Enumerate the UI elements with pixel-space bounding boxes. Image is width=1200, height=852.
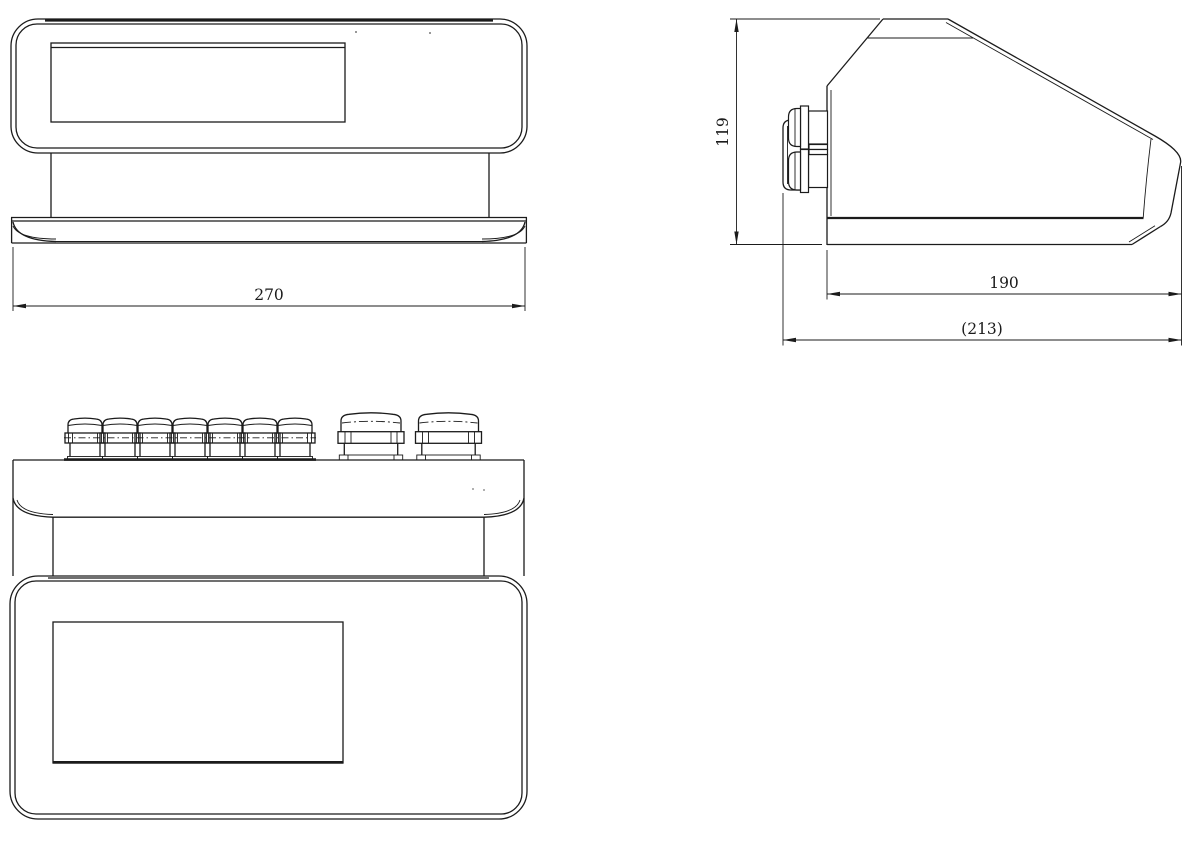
cable-gland-small xyxy=(100,418,140,460)
bottom-access-panel xyxy=(53,622,343,763)
cable-gland-large xyxy=(338,413,404,460)
bottom-base-shoulder-right-inner xyxy=(484,500,520,515)
drawing-canvas: 270 xyxy=(0,0,1200,852)
cable-gland-small xyxy=(135,418,175,460)
cable-gland-small xyxy=(240,418,280,460)
front-head xyxy=(11,19,527,153)
side-front-slope-inner xyxy=(946,23,1153,140)
front-base-shoulder-left-inner xyxy=(13,226,56,239)
gland-mid-block xyxy=(809,145,828,150)
bottom-column xyxy=(53,517,484,576)
cable-gland-small xyxy=(275,418,315,460)
side-view: 119 190 (213) xyxy=(714,19,1182,346)
dim-label-side-overall-depth: (213) xyxy=(961,320,1003,338)
side-depth-dimension: 190 xyxy=(827,166,1182,346)
bottom-head-inner-outline xyxy=(15,581,522,814)
arrowhead-left xyxy=(13,304,26,308)
gland-mid-block xyxy=(809,150,828,155)
speck-dot xyxy=(472,488,474,490)
gland-body xyxy=(809,155,828,188)
arrowhead-left xyxy=(783,338,796,342)
cable-gland-side-lower xyxy=(789,150,828,193)
speck-dot xyxy=(429,32,431,34)
speck-dot xyxy=(355,31,357,33)
bottom-cable-glands xyxy=(64,413,482,460)
gland-cap xyxy=(789,152,801,190)
dim-label-side-depth: 190 xyxy=(989,274,1019,292)
bottom-base xyxy=(13,460,524,576)
arrowhead-up xyxy=(734,19,738,32)
arrowhead-left xyxy=(827,292,840,296)
technical-drawing-page: 270 xyxy=(0,0,1200,852)
gland-body xyxy=(809,111,828,144)
arrowhead-down xyxy=(734,232,738,245)
side-front-slope xyxy=(948,19,1181,227)
cable-gland-small xyxy=(205,418,245,460)
bottom-head xyxy=(10,488,527,819)
dim-label-side-height: 119 xyxy=(714,117,732,147)
front-base xyxy=(11,218,527,244)
gland-cap xyxy=(789,109,801,147)
cable-gland-side-upper xyxy=(789,106,828,149)
side-cable-glands xyxy=(783,106,828,193)
bottom-base-shoulder-left-inner xyxy=(17,500,53,515)
cable-gland-small xyxy=(170,418,210,460)
front-base-shoulder-right-inner xyxy=(482,226,525,239)
front-column xyxy=(51,153,489,218)
side-front-crease xyxy=(1143,139,1151,218)
front-width-dimension: 270 xyxy=(13,247,525,311)
front-view: 270 xyxy=(11,19,527,311)
side-overall-depth-dimension: (213) xyxy=(783,193,1182,346)
arrowhead-right xyxy=(512,304,525,308)
side-base-chamfer-inner xyxy=(1129,226,1155,242)
gland-flange xyxy=(801,106,809,149)
bottom-head-outer-outline xyxy=(10,576,527,819)
side-base-chamfer-outer xyxy=(1132,227,1161,245)
speck-dot xyxy=(483,489,485,491)
gland-flange xyxy=(801,150,809,193)
front-head-outer-outline xyxy=(11,19,527,153)
arrowhead-right xyxy=(1169,338,1182,342)
cable-gland-small xyxy=(65,418,105,460)
front-display-window xyxy=(51,43,345,122)
bottom-view xyxy=(10,413,527,819)
arrowhead-right xyxy=(1169,292,1182,296)
dim-label-front-width: 270 xyxy=(254,286,284,304)
cable-gland-large xyxy=(416,413,482,460)
side-body-outline xyxy=(827,19,1181,245)
side-top-chamfer xyxy=(827,19,883,86)
